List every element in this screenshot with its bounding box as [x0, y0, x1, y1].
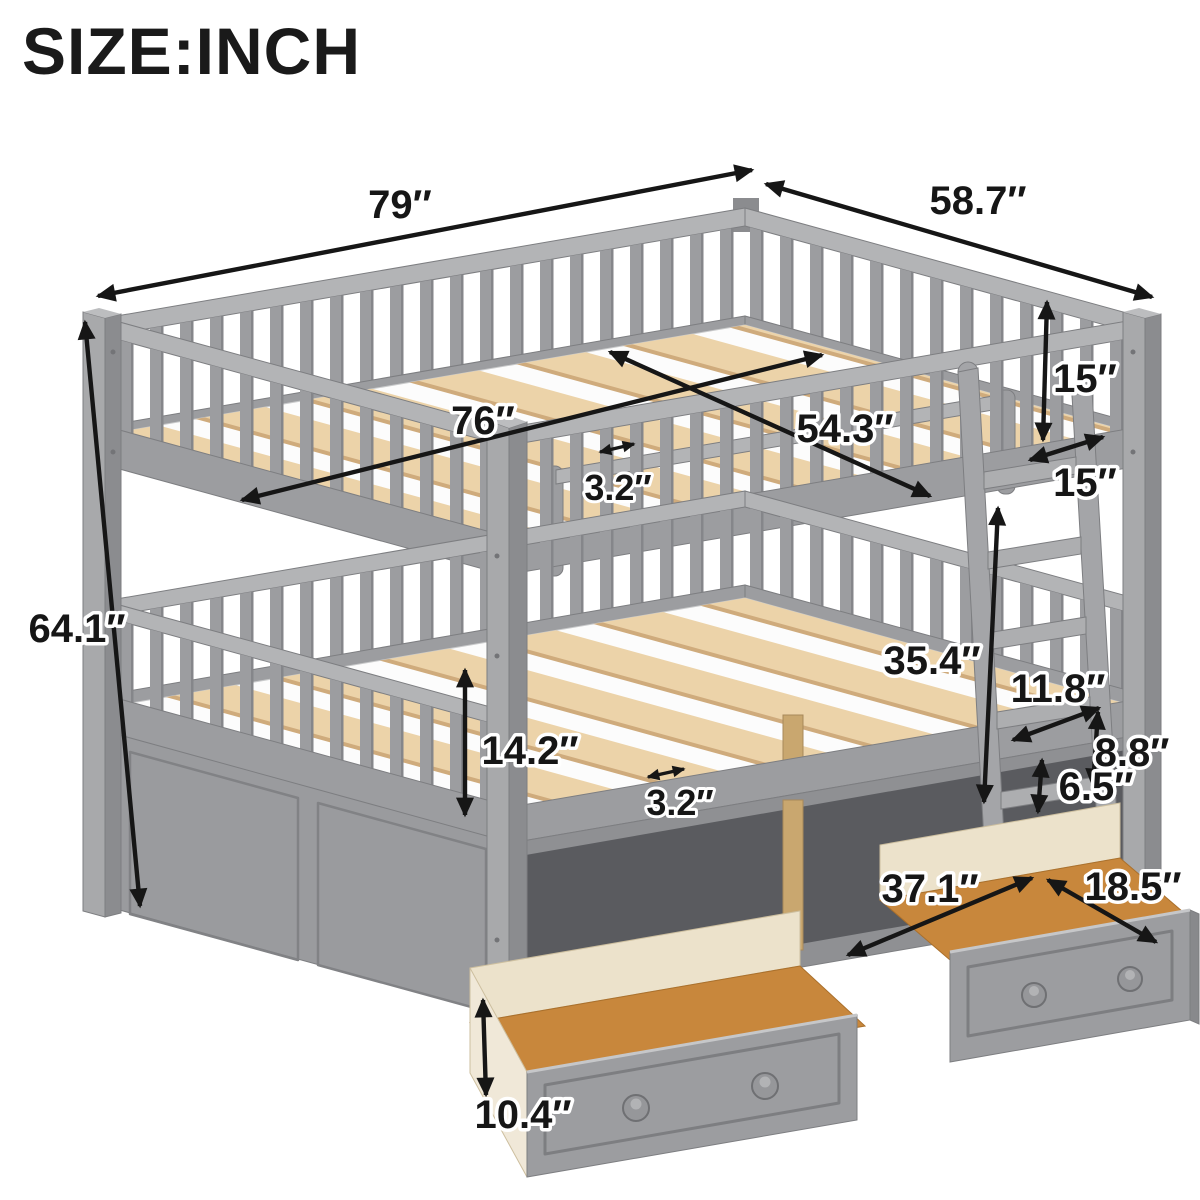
dim-label-drawer-height: 10.4″ [474, 1093, 571, 1137]
dim-label-overall-length: 79″ [368, 183, 432, 227]
dim-label-drawer-length: 37.1″ [881, 867, 978, 911]
dim-label-drawer-depth: 18.5″ [1084, 865, 1181, 909]
dim-label-overall-width: 58.7″ [929, 179, 1026, 223]
dim-label-ladder-width: 11.8″ [1011, 667, 1106, 711]
dim-label-upper-slat-length: 76″ [451, 399, 515, 443]
dim-label-upper-guardrail-height: 15″ [1053, 357, 1117, 401]
dim-label-bunk-clearance: 35.4″ [883, 639, 980, 683]
dim-arrow-drawer-height [483, 1000, 486, 1095]
dim-label-upper-slat-gap: 3.2″ [584, 467, 651, 508]
center-support-leg-top [783, 715, 803, 761]
page-title: SIZE:INCH [22, 14, 361, 88]
dim-label-drawer-clearance: 6.5″ [1059, 765, 1134, 809]
dim-label-lower-guardrail-height: 14.2″ [481, 729, 578, 773]
dim-label-lower-slat-gap: 3.2″ [646, 782, 713, 823]
dim-label-ladder-depth: 15″ [1053, 461, 1117, 505]
bunk-bed-dimension-drawing: SIZE:INCH 79″ 58.7″ 64.1″ 15″ 15″ 76″ 54… [0, 0, 1200, 1200]
dim-label-upper-slat-width: 54.3″ [796, 407, 893, 451]
dim-label-overall-height: 64.1″ [28, 607, 125, 651]
ladder-rung [988, 537, 1081, 569]
product-dimension-diagram: SIZE:INCH 79″ 58.7″ 64.1″ 15″ 15″ 76″ 54… [0, 0, 1200, 1200]
